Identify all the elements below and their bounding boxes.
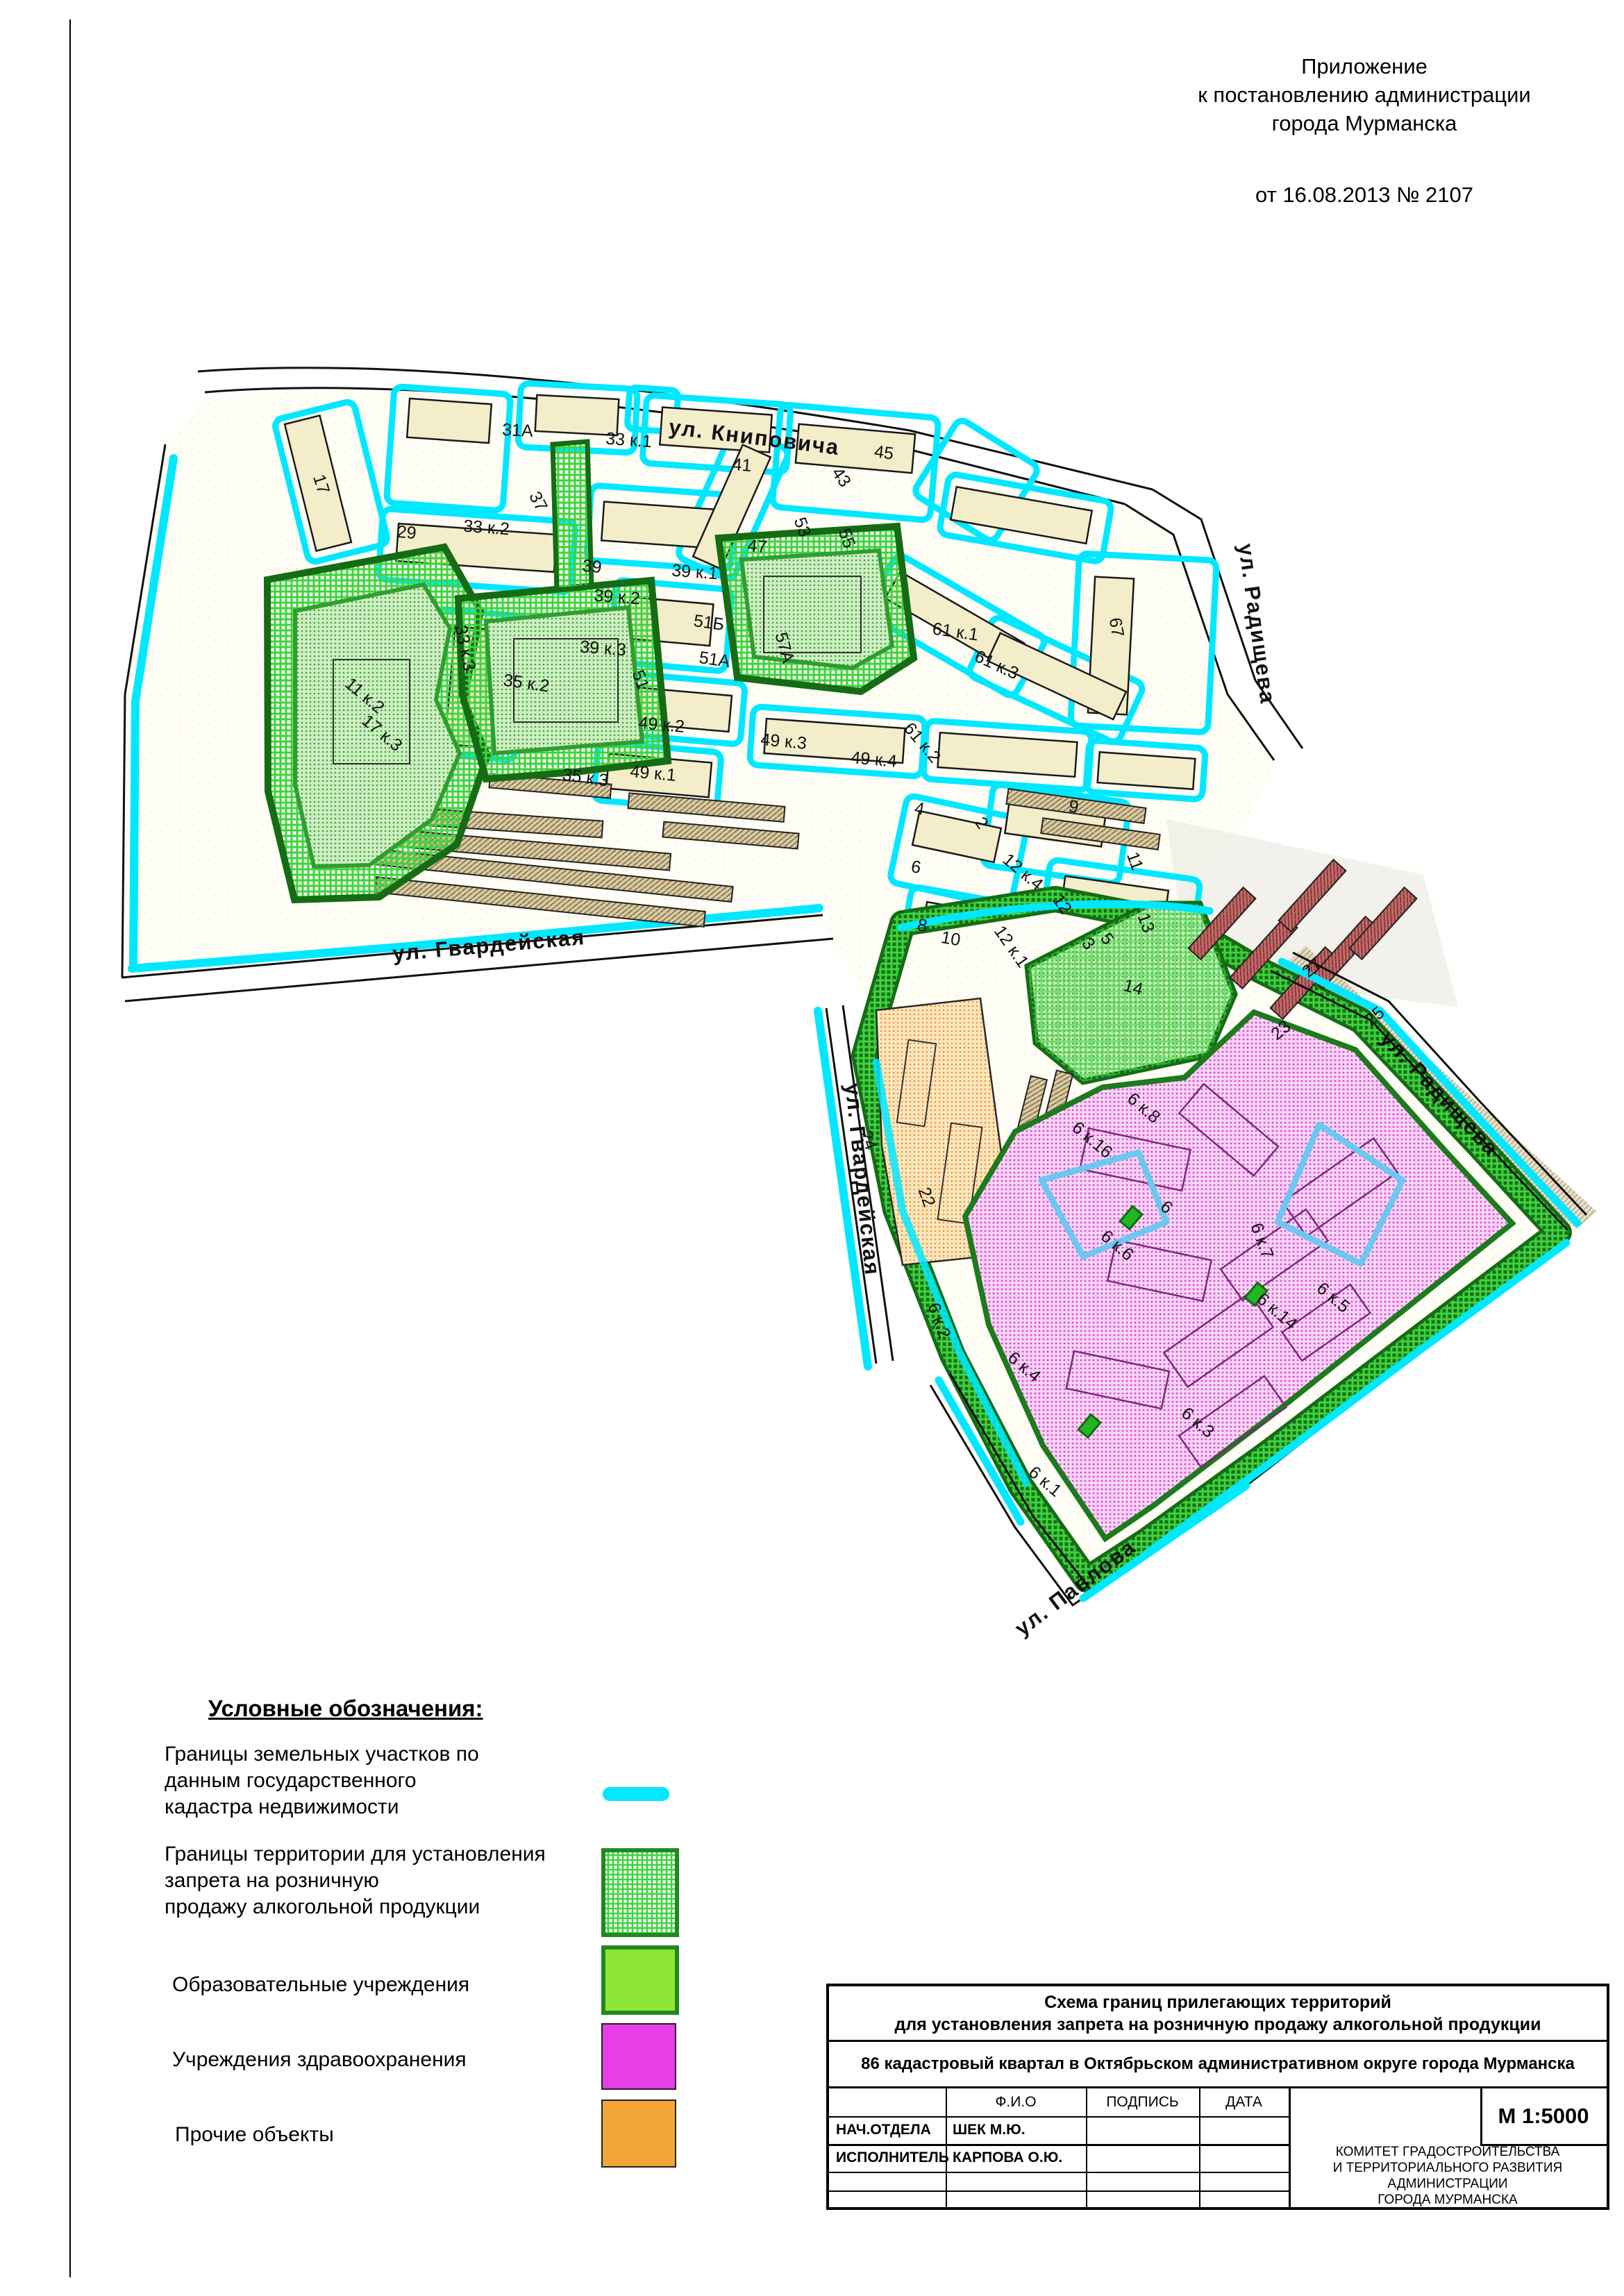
legend-item-education-text: Образовательные учреждения [172,1972,469,1998]
building-label: 49 к.3 [760,730,807,753]
legend-swatch-cyan-line [603,1787,669,1801]
title-block-grid: Ф.И.О ПОДПИСЬ ДАТА НАЧ.ОТДЕЛА ШЕК М.Ю. И… [829,2088,1607,2207]
building-label: 33 к.2 [462,517,510,539]
building-label: 45 [873,442,894,464]
title-block: Схема границ прилегающих территорий для … [826,1984,1609,2210]
legend-swatch-other [601,2100,676,2168]
building-label: 47 [747,536,768,557]
row-role: НАЧ.ОТДЕЛА [829,2116,946,2144]
building-label: 41 [732,455,753,476]
legend-swatch-healthcare [601,2023,676,2090]
map-scale: М 1:5000 [1480,2088,1607,2144]
column-header-fio: Ф.И.О [946,2088,1086,2116]
title-block-title: Схема границ прилегающих территорий для … [829,1986,1607,2042]
legend-swatch-crosshatch [601,1848,679,1937]
document-page: Приложение к постановлению администрации… [0,0,1624,2296]
building-label: 49 к.2 [637,713,685,737]
building-label: 39 [582,556,603,577]
building-label: 33 к.1 [605,429,652,452]
row-role: ИСПОЛНИТЕЛЬ [829,2144,946,2172]
committee-name: КОМИТЕТ ГРАДОСТРОИТЕЛЬСТВА И ТЕРРИТОРИАЛ… [1289,2144,1607,2207]
cadastral-map: ул. Книповичаул. Радищеваул. Радищеваул.… [0,0,1624,2296]
row-date [1199,2116,1289,2144]
building-label: 10 [939,928,962,950]
building-label: 39 к.2 [593,586,640,609]
row-signature [1086,2116,1199,2144]
title-block-subtitle: 86 кадастровый квартал в Октябрьском адм… [829,2042,1607,2088]
building-label: 39 к.3 [579,637,626,660]
building-label: 49 к.4 [850,748,898,771]
row-fio: КАРПОВА О.Ю. [946,2144,1086,2172]
column-header-date: ДАТА [1199,2088,1289,2116]
legend-swatch-education [601,1945,679,2015]
column-header-signature: ПОДПИСЬ [1086,2088,1199,2116]
building-label: 39 к.1 [671,561,718,584]
building-label: 31А [501,420,533,441]
legend-title: Условные обозначения: [208,1695,483,1722]
row-signature [1086,2144,1199,2172]
legend-item-other-text: Прочие объекты [175,2122,334,2148]
building-label: 49 к.1 [629,762,677,785]
legend-item-healthcare-text: Учреждения здравоохранения [172,2047,467,2073]
lower-quarter [864,860,1597,1605]
legend-item-restriction-text: Границы территории для установления запр… [165,1841,546,1920]
building-label: 29 [396,522,417,543]
row-fio: ШЕК М.Ю. [946,2116,1086,2144]
legend-item-cadastral-text: Границы земельных участков по данным гос… [165,1741,479,1820]
building-label: 67 [1105,616,1128,638]
row-date [1199,2144,1289,2172]
street-label: ул. Радищева [1234,542,1280,706]
